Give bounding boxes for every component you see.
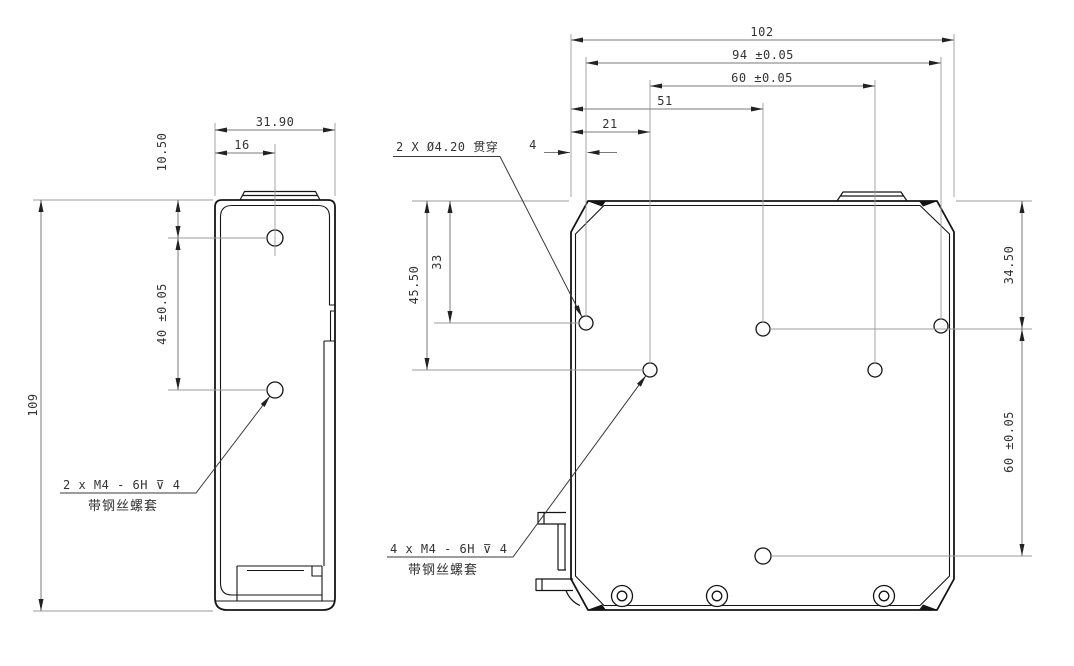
dim-side-hole-offset-x: 16 (215, 138, 275, 153)
dim-front-60-right: 60 ±0.05 (1002, 329, 1022, 556)
dim-label-front-94: 94 ±0.05 (732, 48, 794, 62)
front-view-top-boss (837, 192, 907, 201)
dim-label-side-16: 16 (234, 138, 249, 152)
cad-drawing-page: 31.90 16 10.50 40 ±0.05 109 102 94 ±0.05… (0, 0, 1074, 666)
side-view-top-boss (240, 192, 320, 201)
dim-side-width: 31.90 (215, 115, 335, 130)
dim-front-51: 51 (571, 94, 763, 109)
callout-side-thread: 2 x M4 - 6H ⊽ 4 带钢丝螺套 (60, 396, 270, 514)
screw-head-right (874, 586, 895, 607)
front-hole-through-right (934, 319, 948, 333)
dim-label-front-51: 51 (657, 94, 672, 108)
dim-front-mount-span: 94 ±0.05 (586, 48, 941, 63)
callout-front-thread: 4 x M4 - 6H ⊽ 4 带钢丝螺套 (387, 376, 646, 579)
dim-label-front-33: 33 (430, 254, 444, 269)
dim-side-hole-pitch: 40 ±0.05 (155, 238, 178, 390)
din-clip-bracket (536, 513, 580, 606)
dim-front-45-50: 45.50 (407, 201, 427, 370)
dim-label-side-width: 31.90 (256, 115, 295, 129)
front-hole-center (756, 322, 770, 336)
dim-label-front-45-50: 45.50 (407, 266, 421, 305)
callout-front-thread-line1: 4 x M4 - 6H ⊽ 4 (390, 542, 507, 556)
dim-label-side-40: 40 ±0.05 (155, 283, 169, 345)
callout-through-holes: 2 X Ø4.20 贯穿 (393, 139, 582, 317)
front-hole-thread-upper-right (868, 363, 882, 377)
dim-front-4: 4 (529, 138, 617, 153)
dim-label-front-21: 21 (602, 117, 617, 131)
dim-label-front-4: 4 (529, 138, 537, 152)
front-view (536, 192, 954, 610)
callout-through-holes-text: 2 X Ø4.20 贯穿 (396, 139, 498, 154)
dim-label-side-109: 109 (26, 393, 40, 416)
dim-front-34-50: 34.50 (1002, 201, 1022, 329)
dim-side-hole-top: 10.50 (155, 133, 178, 238)
side-view-bottom-arc (221, 583, 323, 595)
front-hole-thread-upper-left (643, 363, 657, 377)
extension-lines (33, 34, 1032, 611)
screw-head-left (612, 586, 633, 607)
dim-side-height: 109 (26, 200, 41, 611)
chamfer-wedge-top-right (919, 201, 938, 207)
dim-label-side-10-50: 10.50 (155, 133, 169, 172)
callout-side-thread-line1: 2 x M4 - 6H ⊽ 4 (63, 478, 180, 492)
dim-label-front-34-50: 34.50 (1002, 246, 1016, 285)
side-view-right-notch (324, 311, 335, 566)
cad-drawing-canvas: 31.90 16 10.50 40 ±0.05 109 102 94 ±0.05… (0, 0, 1074, 666)
dim-front-33: 33 (430, 201, 450, 323)
dim-front-width: 102 (571, 25, 954, 40)
side-view-bottom-step (215, 566, 335, 601)
front-hole-lower (755, 548, 771, 564)
side-view-outer-outline (215, 200, 335, 610)
callout-front-thread-line2: 带钢丝螺套 (408, 562, 478, 578)
front-view-inner-outline (576, 206, 950, 606)
dim-label-front-102: 102 (750, 25, 773, 39)
chamfer-wedge-bottom-right (919, 605, 938, 611)
dim-front-thread-span: 60 ±0.05 (650, 71, 875, 86)
screw-head-middle (707, 586, 728, 607)
callout-side-thread-line2: 带钢丝螺套 (88, 498, 158, 514)
side-hole-lower (267, 382, 283, 398)
front-hole-through-left (579, 316, 593, 330)
dim-label-front-60-right: 60 ±0.05 (1002, 411, 1016, 473)
dim-label-front-60-top: 60 ±0.05 (731, 71, 793, 85)
dim-front-21: 21 (571, 117, 650, 132)
